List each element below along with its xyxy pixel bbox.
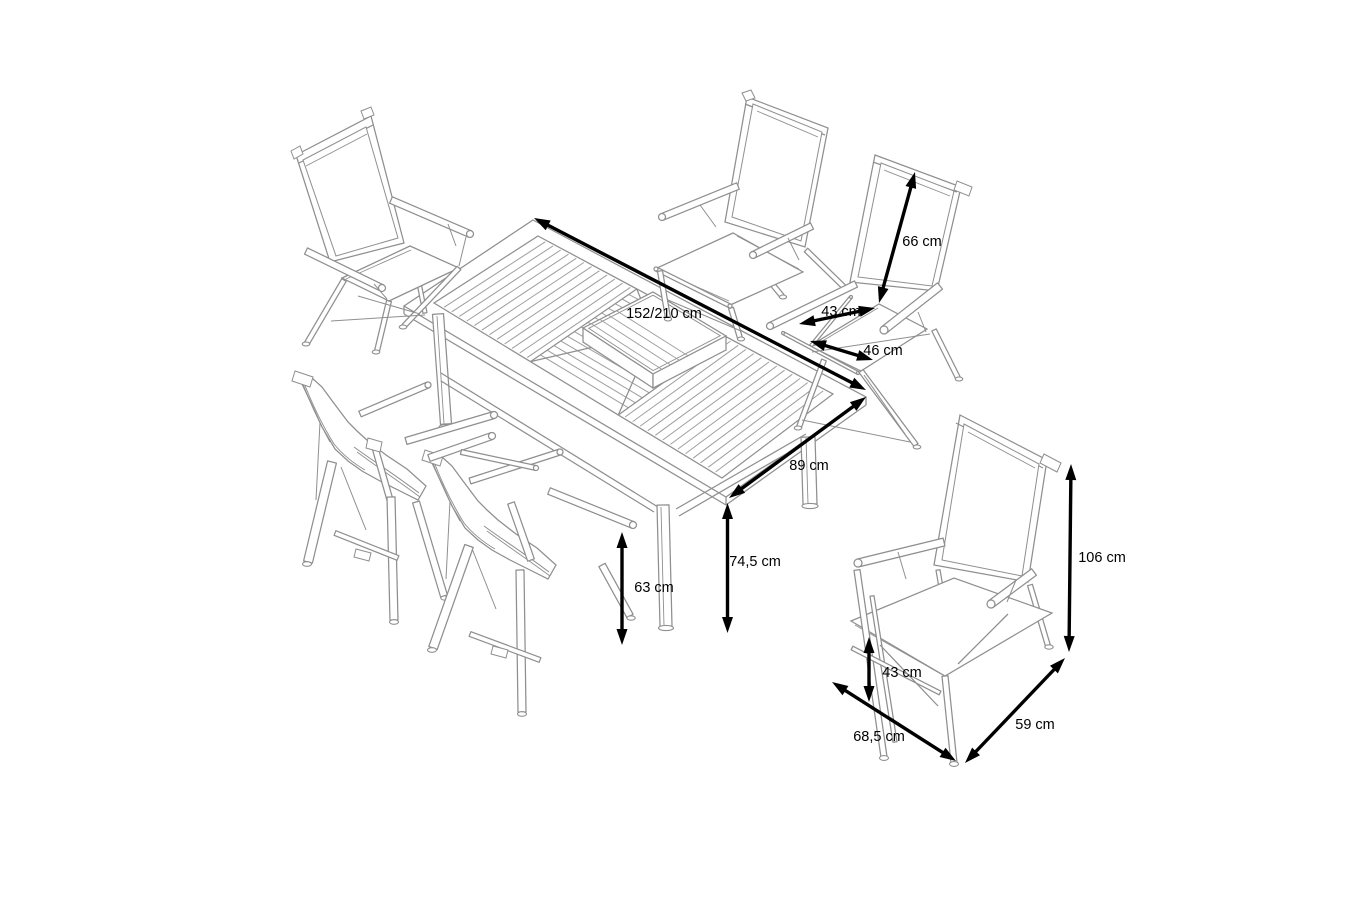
- svg-text:43 cm: 43 cm: [821, 304, 861, 320]
- svg-text:59 cm: 59 cm: [1015, 717, 1055, 733]
- svg-text:66 cm: 66 cm: [902, 234, 942, 250]
- svg-text:106 cm: 106 cm: [1078, 550, 1126, 566]
- svg-text:68,5 cm: 68,5 cm: [853, 729, 905, 745]
- svg-text:63 cm: 63 cm: [634, 580, 674, 596]
- svg-text:152/210 cm: 152/210 cm: [626, 306, 702, 322]
- svg-text:43 cm: 43 cm: [882, 665, 922, 681]
- svg-text:74,5 cm: 74,5 cm: [729, 554, 781, 570]
- svg-text:89 cm: 89 cm: [789, 458, 829, 474]
- svg-text:46 cm: 46 cm: [863, 343, 903, 359]
